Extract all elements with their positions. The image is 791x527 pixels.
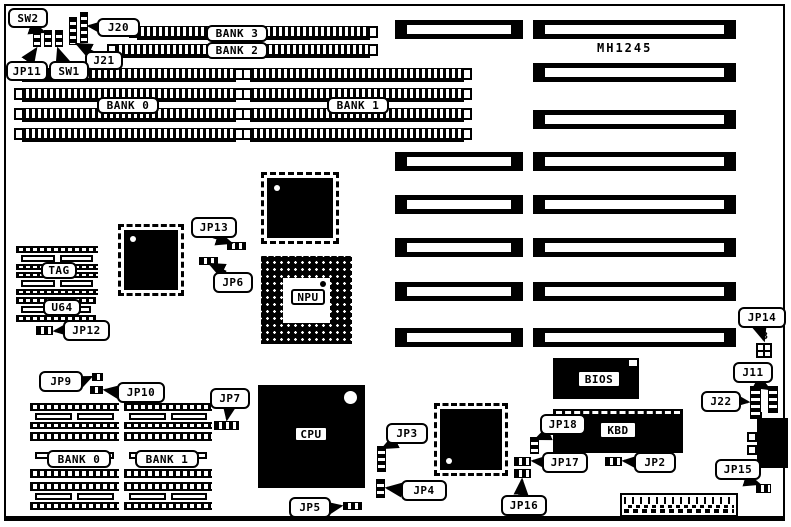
jumper-jp3 bbox=[377, 446, 386, 472]
socket-body bbox=[124, 411, 212, 422]
callout-bank0-bottom: BANK 0 bbox=[47, 450, 111, 468]
isa-slot-8bit bbox=[395, 20, 523, 39]
jumper-jp14 bbox=[756, 343, 772, 358]
socket-body bbox=[124, 491, 212, 502]
slot-opening bbox=[407, 287, 511, 296]
callout-jp17: JP17 bbox=[542, 452, 588, 473]
simm-slot-bank1 bbox=[250, 68, 464, 82]
jumper-jp2 bbox=[605, 457, 622, 466]
power-pin-row bbox=[624, 505, 734, 508]
dram-socket bbox=[30, 403, 119, 429]
pin-row bbox=[30, 422, 119, 430]
board-model-text: MH1245 bbox=[597, 41, 652, 55]
callout-jp18: JP18 bbox=[540, 414, 586, 435]
pin-row bbox=[124, 469, 212, 478]
jumper-jp10 bbox=[90, 386, 103, 394]
pin1-dot bbox=[274, 185, 280, 191]
pin1-dot bbox=[130, 236, 136, 242]
pin1-dot bbox=[446, 458, 452, 464]
io-controller-qfp bbox=[440, 409, 502, 470]
socket-bar bbox=[77, 493, 114, 500]
callout-jp11: JP11 bbox=[6, 61, 48, 81]
socket-bar bbox=[129, 493, 166, 500]
dram-socket bbox=[30, 482, 119, 510]
callout-jp7: JP7 bbox=[210, 388, 250, 409]
socket-bar bbox=[77, 413, 114, 420]
jumper-jp7 bbox=[214, 421, 239, 430]
isa-slot-16bit bbox=[533, 328, 736, 347]
callout-bank1-top: BANK 1 bbox=[327, 97, 389, 114]
jumper-jp13 bbox=[227, 242, 246, 250]
isa-slot-16bit bbox=[533, 20, 736, 39]
slot-opening bbox=[407, 200, 511, 209]
socket-bar bbox=[129, 413, 166, 420]
pin-row bbox=[30, 502, 119, 511]
power-pin-row bbox=[624, 497, 734, 504]
callout-bank1-bottom: BANK 1 bbox=[135, 450, 199, 468]
pin-row bbox=[124, 482, 212, 491]
pin-row bbox=[124, 502, 212, 511]
callout-j11: J11 bbox=[733, 362, 773, 383]
switch-sw2 bbox=[44, 30, 52, 47]
jumper-jp4 bbox=[376, 479, 385, 498]
callout-jp13: JP13 bbox=[191, 217, 237, 238]
socket-body bbox=[16, 278, 98, 289]
socket-bar bbox=[35, 413, 72, 420]
header-j21 bbox=[69, 17, 77, 45]
header-j20 bbox=[80, 12, 88, 43]
callout-bank3: BANK 3 bbox=[206, 25, 268, 42]
socket-body bbox=[30, 491, 119, 502]
jumper-jp5 bbox=[343, 502, 362, 510]
chipset-qfp bbox=[267, 178, 333, 238]
callout-jp2: JP2 bbox=[634, 452, 676, 473]
socket-bar bbox=[60, 255, 94, 262]
isa-slot-8bit bbox=[395, 195, 523, 214]
isa-slot-16bit bbox=[533, 282, 736, 301]
power-connector bbox=[620, 493, 738, 517]
isa-slot-16bit bbox=[533, 195, 736, 214]
callout-sw2: SW2 bbox=[8, 8, 48, 28]
slot-opening bbox=[545, 25, 724, 34]
pin-row bbox=[30, 403, 119, 411]
jumper-pin bbox=[758, 352, 763, 357]
isa-slot-16bit bbox=[533, 152, 736, 171]
callout-u64: U64 bbox=[43, 299, 81, 316]
jumper-jp18 bbox=[530, 437, 539, 454]
motherboard-diagram: MH1245 NPU bbox=[0, 0, 791, 527]
dram-socket bbox=[124, 403, 212, 429]
bios-label: BIOS bbox=[577, 370, 621, 388]
isa-slot-8bit bbox=[395, 282, 523, 301]
slot-opening bbox=[545, 200, 724, 209]
slot-opening bbox=[545, 115, 724, 124]
din-tab bbox=[747, 445, 757, 455]
jumper-pin bbox=[765, 352, 770, 357]
slot-opening bbox=[545, 68, 724, 77]
jumper-pin bbox=[765, 345, 770, 350]
header-j22 bbox=[750, 386, 761, 419]
callout-bank2: BANK 2 bbox=[206, 42, 268, 59]
callout-jp14: JP14 bbox=[738, 307, 786, 328]
pin-row bbox=[124, 403, 212, 411]
jumper-jp15 bbox=[756, 484, 771, 493]
kbd-label: KBD bbox=[599, 421, 637, 439]
slot-opening bbox=[545, 333, 724, 342]
jumper-pin bbox=[758, 345, 763, 350]
pin-row bbox=[16, 289, 98, 295]
chip-notch bbox=[629, 360, 637, 366]
isa-slot-16bit bbox=[533, 238, 736, 257]
jumper-jp12 bbox=[36, 326, 53, 335]
socket-body bbox=[30, 411, 119, 422]
jumper-jp9 bbox=[92, 373, 103, 381]
jumper-jp11 bbox=[33, 30, 41, 47]
jumper-jp17 bbox=[514, 457, 531, 466]
callout-jp3: JP3 bbox=[386, 423, 428, 444]
dram-socket bbox=[124, 482, 212, 510]
din-tab bbox=[747, 432, 757, 442]
jumper-jp6 bbox=[199, 257, 218, 265]
isa-slot-8bit bbox=[395, 152, 523, 171]
slot-opening bbox=[545, 243, 724, 252]
callout-jp4: JP4 bbox=[401, 480, 447, 501]
simm-slot-bank1 bbox=[250, 128, 464, 142]
socket-bar bbox=[60, 280, 94, 287]
pin-row bbox=[30, 469, 119, 478]
power-pin-row bbox=[624, 509, 734, 513]
slot-opening bbox=[407, 333, 511, 342]
callout-j21: J21 bbox=[85, 51, 123, 70]
callout-tag: TAG bbox=[41, 262, 77, 279]
slot-opening bbox=[545, 287, 724, 296]
socket-bar bbox=[21, 255, 55, 262]
slot-opening bbox=[407, 157, 511, 166]
callout-sw1: SW1 bbox=[49, 61, 89, 81]
slot-opening bbox=[545, 157, 724, 166]
callout-jp16: JP16 bbox=[501, 495, 547, 516]
callout-j20: J20 bbox=[97, 18, 140, 37]
pin1-dot bbox=[320, 281, 326, 287]
callout-jp12: JP12 bbox=[63, 320, 110, 341]
callout-jp9: JP9 bbox=[39, 371, 83, 392]
keyboard-din-connector bbox=[757, 418, 788, 468]
pin-row bbox=[30, 482, 119, 491]
callout-j22: J22 bbox=[701, 391, 741, 412]
cpu-label: CPU bbox=[294, 426, 328, 442]
header-j11 bbox=[768, 386, 778, 413]
switch-sw1 bbox=[55, 30, 63, 47]
socket-bar bbox=[171, 493, 208, 500]
isa-slot-16bit bbox=[533, 110, 736, 129]
isa-slot-16bit bbox=[533, 63, 736, 82]
socket-bar bbox=[21, 280, 55, 287]
slot-opening bbox=[407, 25, 511, 34]
callout-jp10: JP10 bbox=[117, 382, 165, 403]
isa-slot-8bit bbox=[395, 238, 523, 257]
callout-jp5: JP5 bbox=[289, 497, 331, 518]
simm-slot-bank0 bbox=[22, 128, 236, 142]
pin-row bbox=[30, 432, 119, 441]
jp14-pin3-text: 3 bbox=[762, 331, 768, 342]
socket-bar bbox=[35, 493, 72, 500]
jumper-jp16 bbox=[514, 469, 531, 478]
chipset-qfp bbox=[124, 230, 178, 290]
pin-row bbox=[124, 422, 212, 430]
socket-bar bbox=[171, 413, 208, 420]
slot-opening bbox=[407, 243, 511, 252]
callout-jp15: JP15 bbox=[715, 459, 761, 480]
npu-label: NPU bbox=[291, 289, 325, 305]
isa-slot-8bit bbox=[395, 328, 523, 347]
callout-jp6: JP6 bbox=[213, 272, 253, 293]
pin-row bbox=[124, 432, 212, 441]
callout-bank0-top: BANK 0 bbox=[97, 97, 159, 114]
pin1-dot bbox=[344, 391, 357, 404]
